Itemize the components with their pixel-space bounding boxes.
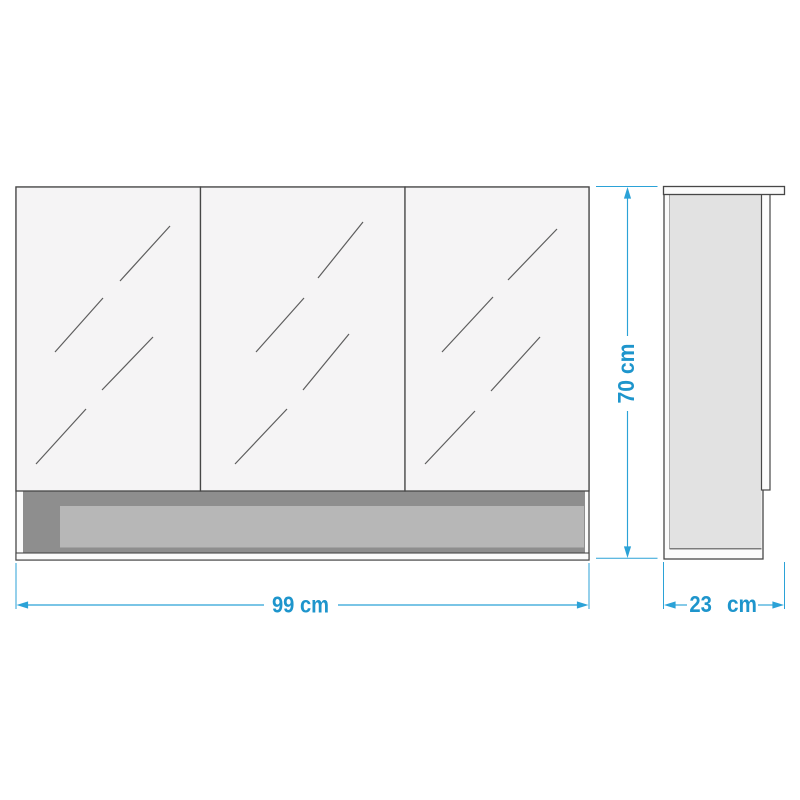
svg-text:cm: cm (727, 591, 757, 617)
svg-text:23: 23 (689, 591, 712, 617)
svg-text:99 cm: 99 cm (272, 592, 329, 618)
svg-text:70 cm: 70 cm (613, 344, 639, 404)
